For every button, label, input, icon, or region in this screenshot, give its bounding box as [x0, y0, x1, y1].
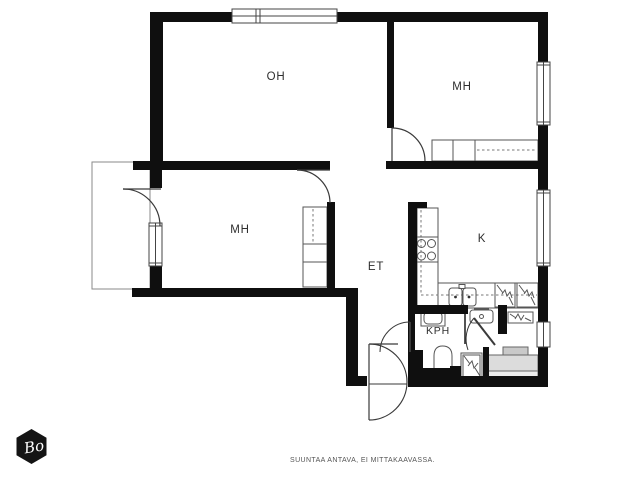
toilet-icon [434, 346, 452, 371]
closet-bedroom-top [432, 140, 538, 161]
washbasin-icon [470, 309, 493, 323]
window-bedroom-top [537, 62, 550, 125]
logo-text: Bo [22, 436, 46, 457]
company-logo: Bo [12, 426, 54, 468]
room-label-bathroom: KPH [426, 325, 450, 337]
walls [132, 12, 548, 387]
disclaimer-text: SUUNTAA ANTAVA, EI MITTAKAAVASSA. [290, 457, 435, 464]
door-entrance [369, 344, 407, 420]
door-bedroom-left [297, 170, 330, 203]
floor-plan-drawing [0, 0, 640, 480]
stove-icon [415, 237, 438, 262]
window-living-room [232, 9, 337, 23]
window-kitchen [537, 190, 550, 266]
room-label-living-room: OH [267, 71, 286, 83]
window-sauna [537, 322, 550, 347]
window-bedroom-left [149, 223, 162, 266]
floor-plan-page: OH MH MH ET K KPH SUUNTAA ANTAVA, EI MIT… [0, 0, 640, 480]
closet-bedroom-left [303, 207, 327, 287]
room-label-kitchen: K [478, 233, 486, 245]
balcony [92, 162, 150, 289]
door-bedroom-top [392, 128, 425, 161]
room-label-bedroom-top: MH [452, 81, 472, 93]
sauna-stove-icon [508, 312, 533, 323]
room-label-hallway: ET [368, 261, 384, 273]
water-heater-icon [461, 353, 482, 379]
sauna-benches [488, 347, 538, 380]
room-label-bedroom-left: MH [230, 224, 250, 236]
